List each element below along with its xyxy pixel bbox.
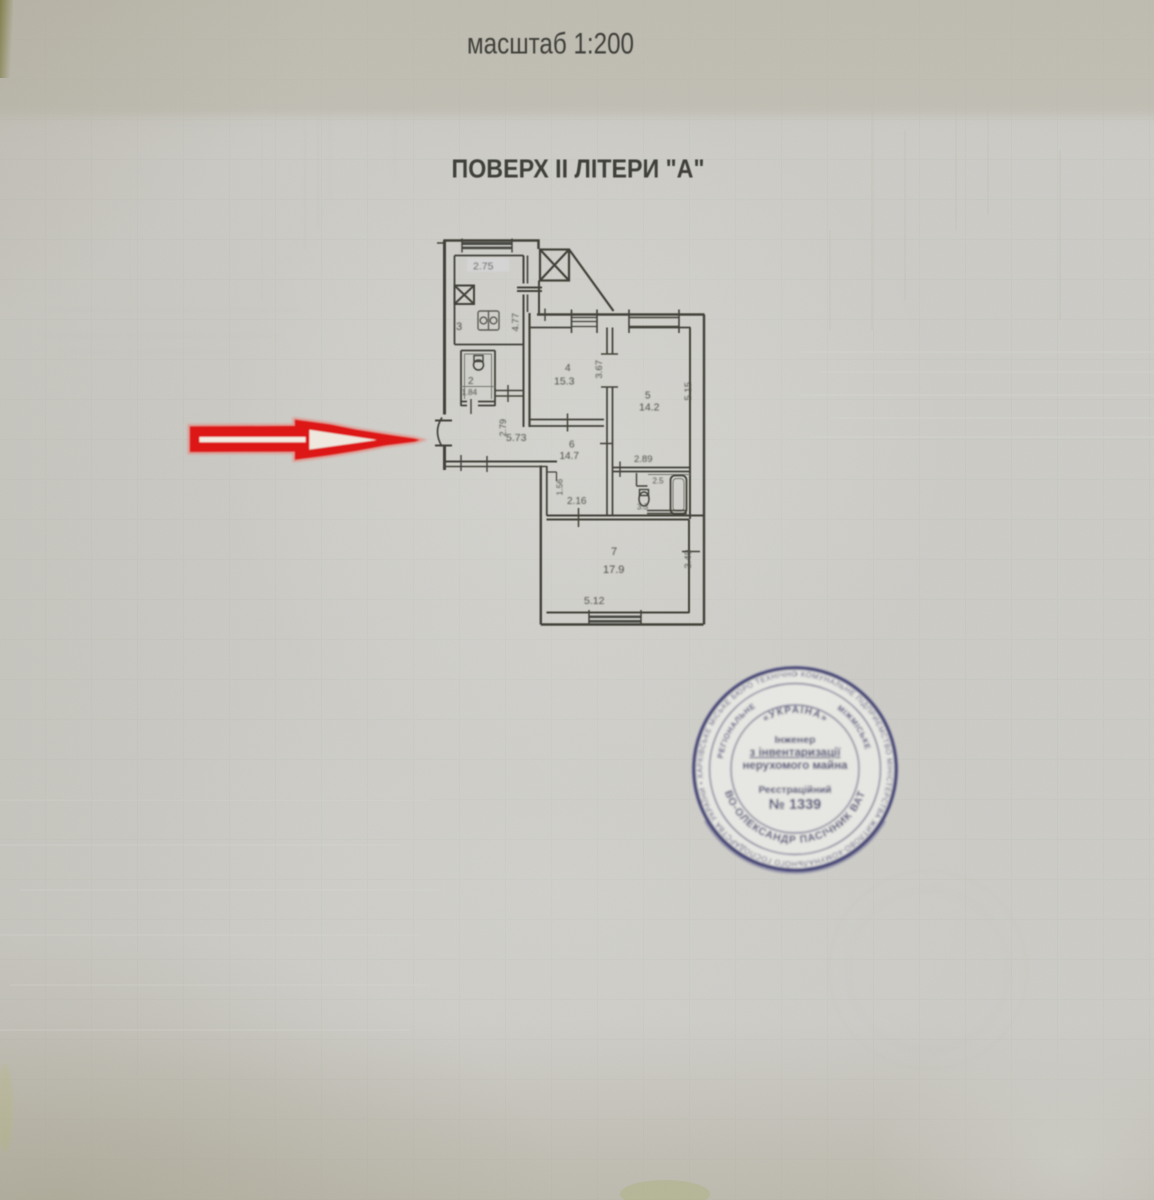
svg-text:3.67: 3.67 [594, 360, 605, 379]
svg-text:2.5: 2.5 [653, 477, 665, 486]
svg-text:Інженер: Інженер [774, 734, 815, 746]
svg-text:3.3: 3.3 [637, 503, 649, 512]
svg-text:15.3: 15.3 [554, 376, 575, 388]
svg-text:1.56: 1.56 [555, 479, 565, 496]
svg-text:ПОВЕРХ II ЛІТЕРИ "А": ПОВЕРХ II ЛІТЕРИ "А" [452, 154, 705, 184]
svg-text:5.73: 5.73 [506, 432, 527, 444]
svg-text:нерухомого майна: нерухомого майна [742, 760, 848, 772]
svg-text:4: 4 [565, 363, 571, 374]
svg-text:6: 6 [569, 440, 575, 451]
svg-text:№ 1339: № 1339 [769, 797, 821, 813]
svg-text:5.15: 5.15 [683, 382, 694, 401]
svg-text:2.16: 2.16 [567, 496, 587, 507]
svg-text:2.75: 2.75 [473, 261, 494, 273]
svg-text:масштаб 1:200: масштаб 1:200 [467, 28, 634, 61]
svg-text:2.89: 2.89 [634, 454, 653, 465]
svg-text:17.9: 17.9 [603, 564, 624, 576]
svg-text:7: 7 [611, 546, 617, 558]
svg-text:14.7: 14.7 [560, 451, 580, 462]
svg-text:5: 5 [645, 391, 651, 402]
svg-text:3.49: 3.49 [683, 550, 694, 569]
svg-text:Реєстраційний: Реєстраційний [758, 785, 831, 796]
svg-text:5.12: 5.12 [584, 595, 605, 607]
svg-text:1.84: 1.84 [462, 388, 478, 397]
svg-text:14.2: 14.2 [639, 402, 660, 414]
svg-text:з інвентаризації: з інвентаризації [750, 747, 842, 759]
svg-text:4.77: 4.77 [511, 313, 522, 332]
svg-text:3: 3 [456, 321, 462, 333]
svg-text:2.79: 2.79 [498, 419, 508, 437]
svg-text:2: 2 [468, 376, 474, 387]
